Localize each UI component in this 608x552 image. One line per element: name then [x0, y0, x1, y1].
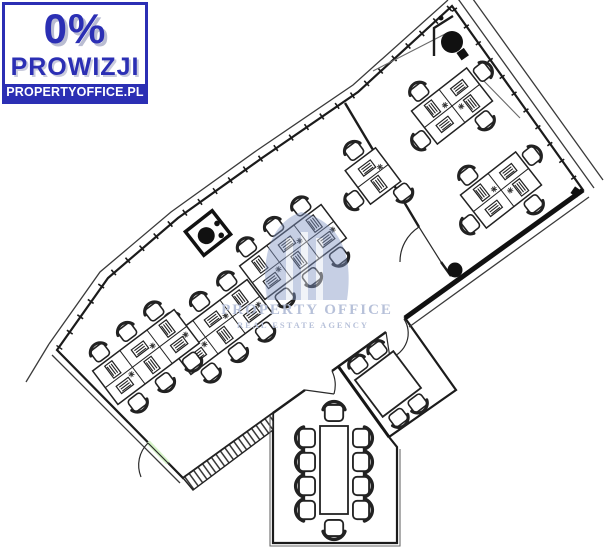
desk-cluster — [81, 294, 212, 421]
door-team-room — [400, 227, 441, 262]
badge-percent-text: 0% — [5, 5, 145, 53]
meeting-room-furniture — [343, 335, 433, 432]
door-conference-room — [305, 371, 335, 394]
floor-plan-page: 0% PROWIZJI PROPERTYOFFICE.PL — [0, 0, 608, 552]
kitchenette-unit — [185, 211, 230, 256]
column — [448, 263, 463, 278]
door-meeting-room — [386, 319, 408, 358]
badge-commission-text: PROWIZJI — [5, 53, 145, 84]
badge-website-text: PROPERTYOFFICE.PL — [5, 84, 145, 101]
desk-cluster — [384, 40, 521, 172]
watermark-title: PROPERTY OFFICE — [221, 302, 393, 318]
entrance-stairs — [183, 413, 273, 490]
desk-cluster-small — [317, 129, 416, 232]
conference-room-furniture — [296, 402, 373, 540]
promo-badge: 0% PROWIZJI PROPERTYOFFICE.PL — [2, 2, 148, 104]
watermark-subtitle: REAL ESTATE AGENCY — [237, 320, 369, 330]
